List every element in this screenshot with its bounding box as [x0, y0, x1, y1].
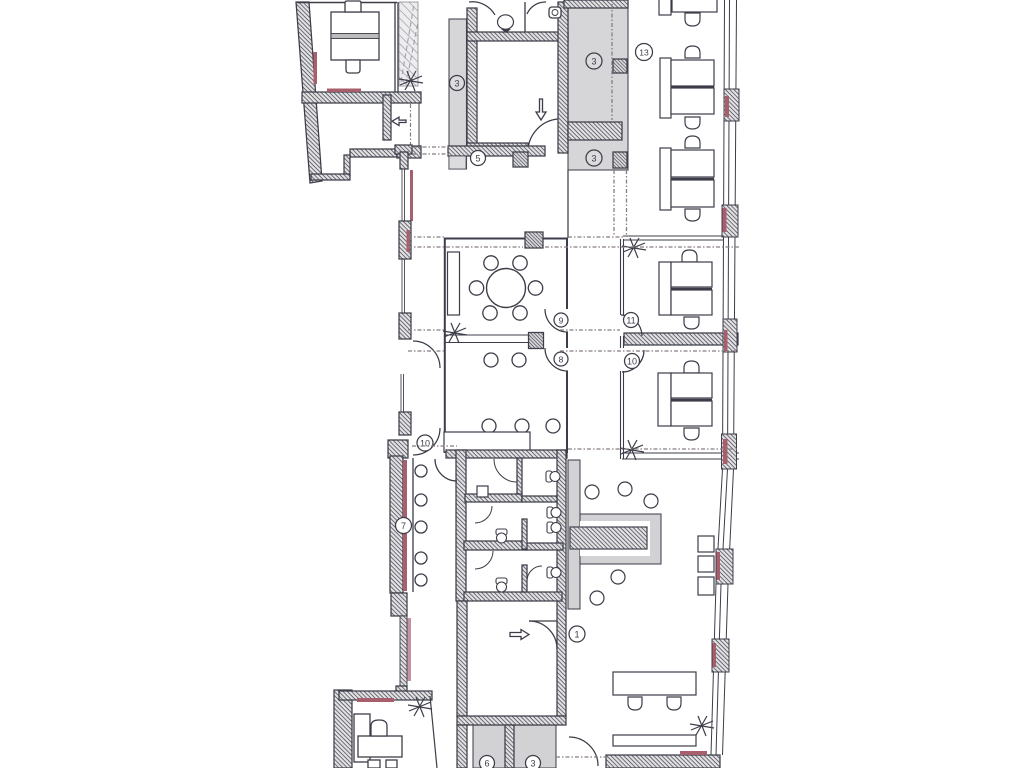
svg-text:1: 1 — [574, 630, 579, 640]
svg-text:13: 13 — [639, 48, 649, 58]
svg-text:10: 10 — [420, 439, 430, 449]
svg-text:5: 5 — [475, 154, 480, 164]
svg-text:7: 7 — [401, 521, 406, 531]
svg-text:3: 3 — [591, 154, 596, 164]
svg-text:9: 9 — [559, 316, 564, 326]
svg-text:3: 3 — [591, 57, 596, 67]
svg-text:3: 3 — [454, 79, 459, 89]
svg-text:8: 8 — [559, 355, 564, 365]
svg-text:11: 11 — [626, 316, 635, 326]
svg-text:10: 10 — [627, 357, 637, 367]
svg-text:6: 6 — [484, 759, 489, 768]
svg-text:3: 3 — [530, 759, 535, 768]
